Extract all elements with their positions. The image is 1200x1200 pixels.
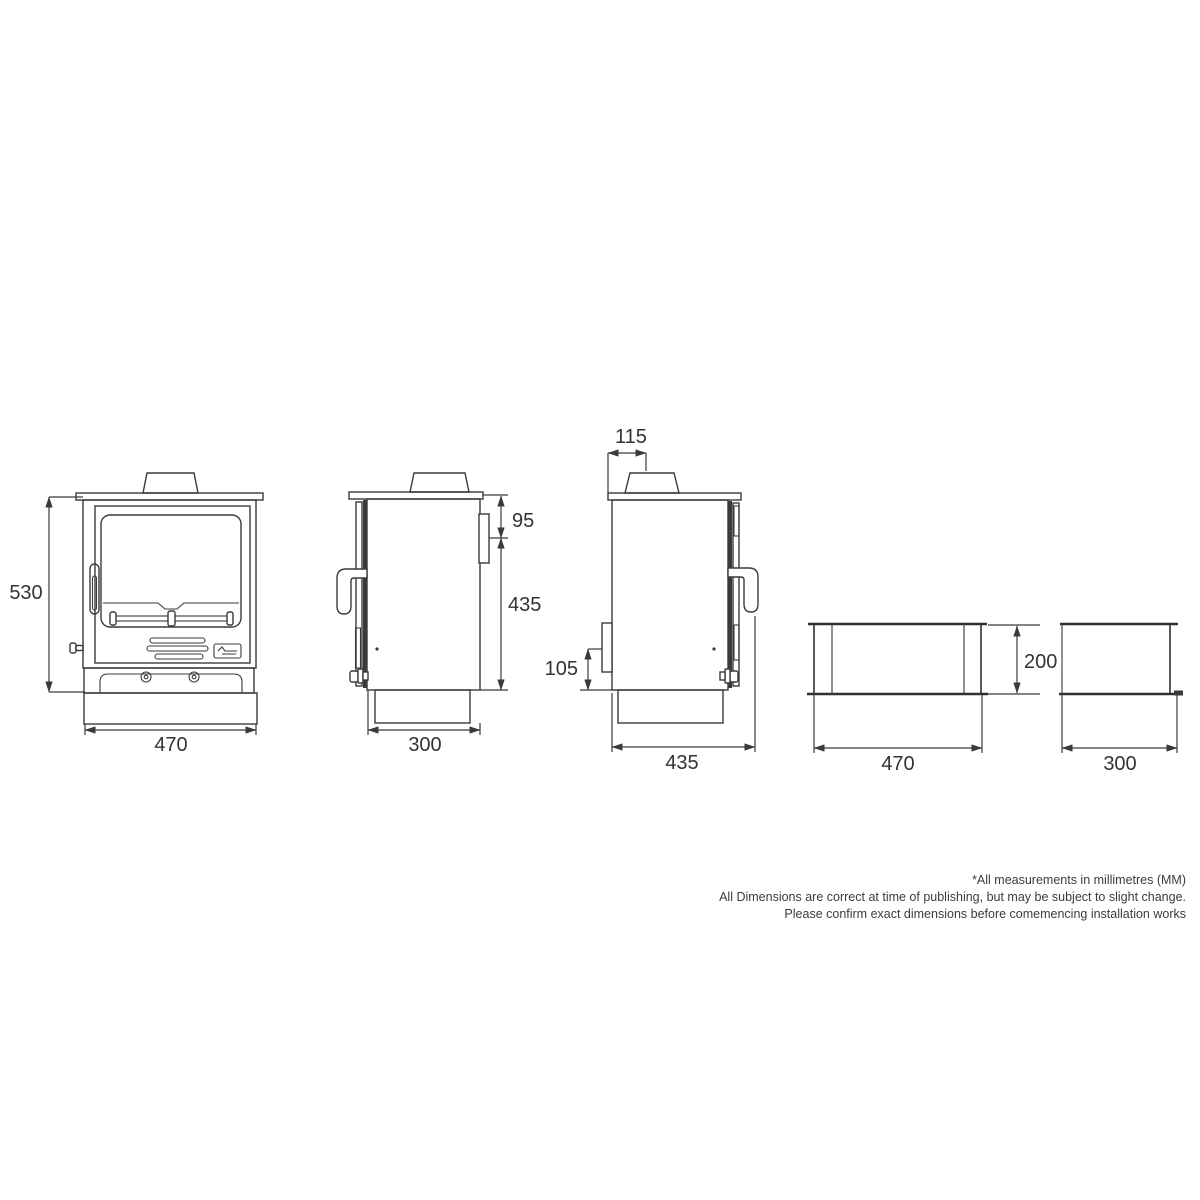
dimension-470-bench: 470 — [814, 695, 982, 775]
door-glass — [101, 515, 241, 627]
front-width-label: 470 — [154, 734, 187, 756]
dimension-530: 530 — [9, 497, 85, 692]
door-frame — [95, 506, 250, 663]
bench-width-label: 470 — [881, 753, 914, 775]
door-edge-strip — [356, 502, 362, 686]
door-edge-dark-strip — [363, 500, 367, 688]
disclaimer-line-3: Please confirm exact dimensions before c… — [719, 906, 1186, 923]
vent-slats — [147, 638, 208, 659]
stove-body-outline — [367, 499, 480, 690]
side-view-right: 115 105 435 — [545, 426, 758, 774]
depth-label: 300 — [408, 734, 441, 756]
stove-dimension-drawing: 530 470 95 435 — [0, 0, 1200, 1200]
front-height-label: 530 — [9, 582, 42, 604]
bench-front-view: 200 470 — [807, 624, 1057, 775]
dimension-300-bench: 300 — [1062, 695, 1177, 775]
flue-drop-label: 95 — [512, 510, 534, 532]
rear-flue-outlet — [602, 623, 612, 672]
body-pin — [712, 647, 715, 650]
plinth — [375, 690, 470, 723]
stove-body-outline — [612, 500, 728, 690]
front-view: 530 470 — [9, 473, 263, 756]
top-plate — [608, 493, 741, 500]
dimension-200: 200 — [988, 625, 1057, 694]
flue-offset-label: 115 — [615, 426, 647, 448]
technical-drawing-page: 530 470 95 435 — [0, 0, 1200, 1200]
flue-collar — [143, 473, 198, 493]
bench-side-view: 300 — [1059, 624, 1183, 775]
flue-collar — [410, 473, 469, 492]
dimension-470-front: 470 — [85, 724, 256, 756]
rear-bracket — [479, 514, 489, 563]
top-plate — [349, 492, 483, 499]
plinth — [618, 690, 723, 723]
ash-lip — [84, 668, 254, 693]
brand-plate — [214, 644, 241, 658]
bench-rear-foot-tab — [1174, 691, 1183, 696]
top-plate — [76, 493, 263, 500]
plinth — [84, 693, 257, 724]
latch-bolt — [720, 669, 738, 683]
side-view-left: 95 435 300 — [337, 473, 541, 756]
riddling-bar — [110, 611, 233, 626]
disclaimer-line-1: *All measurements in millimetres (MM) — [719, 872, 1186, 889]
measurement-disclaimer: *All measurements in millimetres (MM) Al… — [719, 872, 1186, 923]
disclaimer-line-2: All Dimensions are correct at time of pu… — [719, 889, 1186, 906]
air-control-knob — [70, 643, 83, 653]
body-pin — [375, 647, 378, 650]
bench-depth-label: 300 — [1103, 753, 1136, 775]
body-height-label: 435 — [508, 594, 541, 616]
outlet-height-label: 105 — [545, 658, 578, 680]
overall-depth-label: 435 — [665, 752, 698, 774]
door-edge-dark-strip — [728, 501, 732, 688]
flue-collar — [625, 473, 679, 493]
log-guard-line — [103, 603, 239, 609]
bench-height-label: 200 — [1024, 651, 1057, 673]
